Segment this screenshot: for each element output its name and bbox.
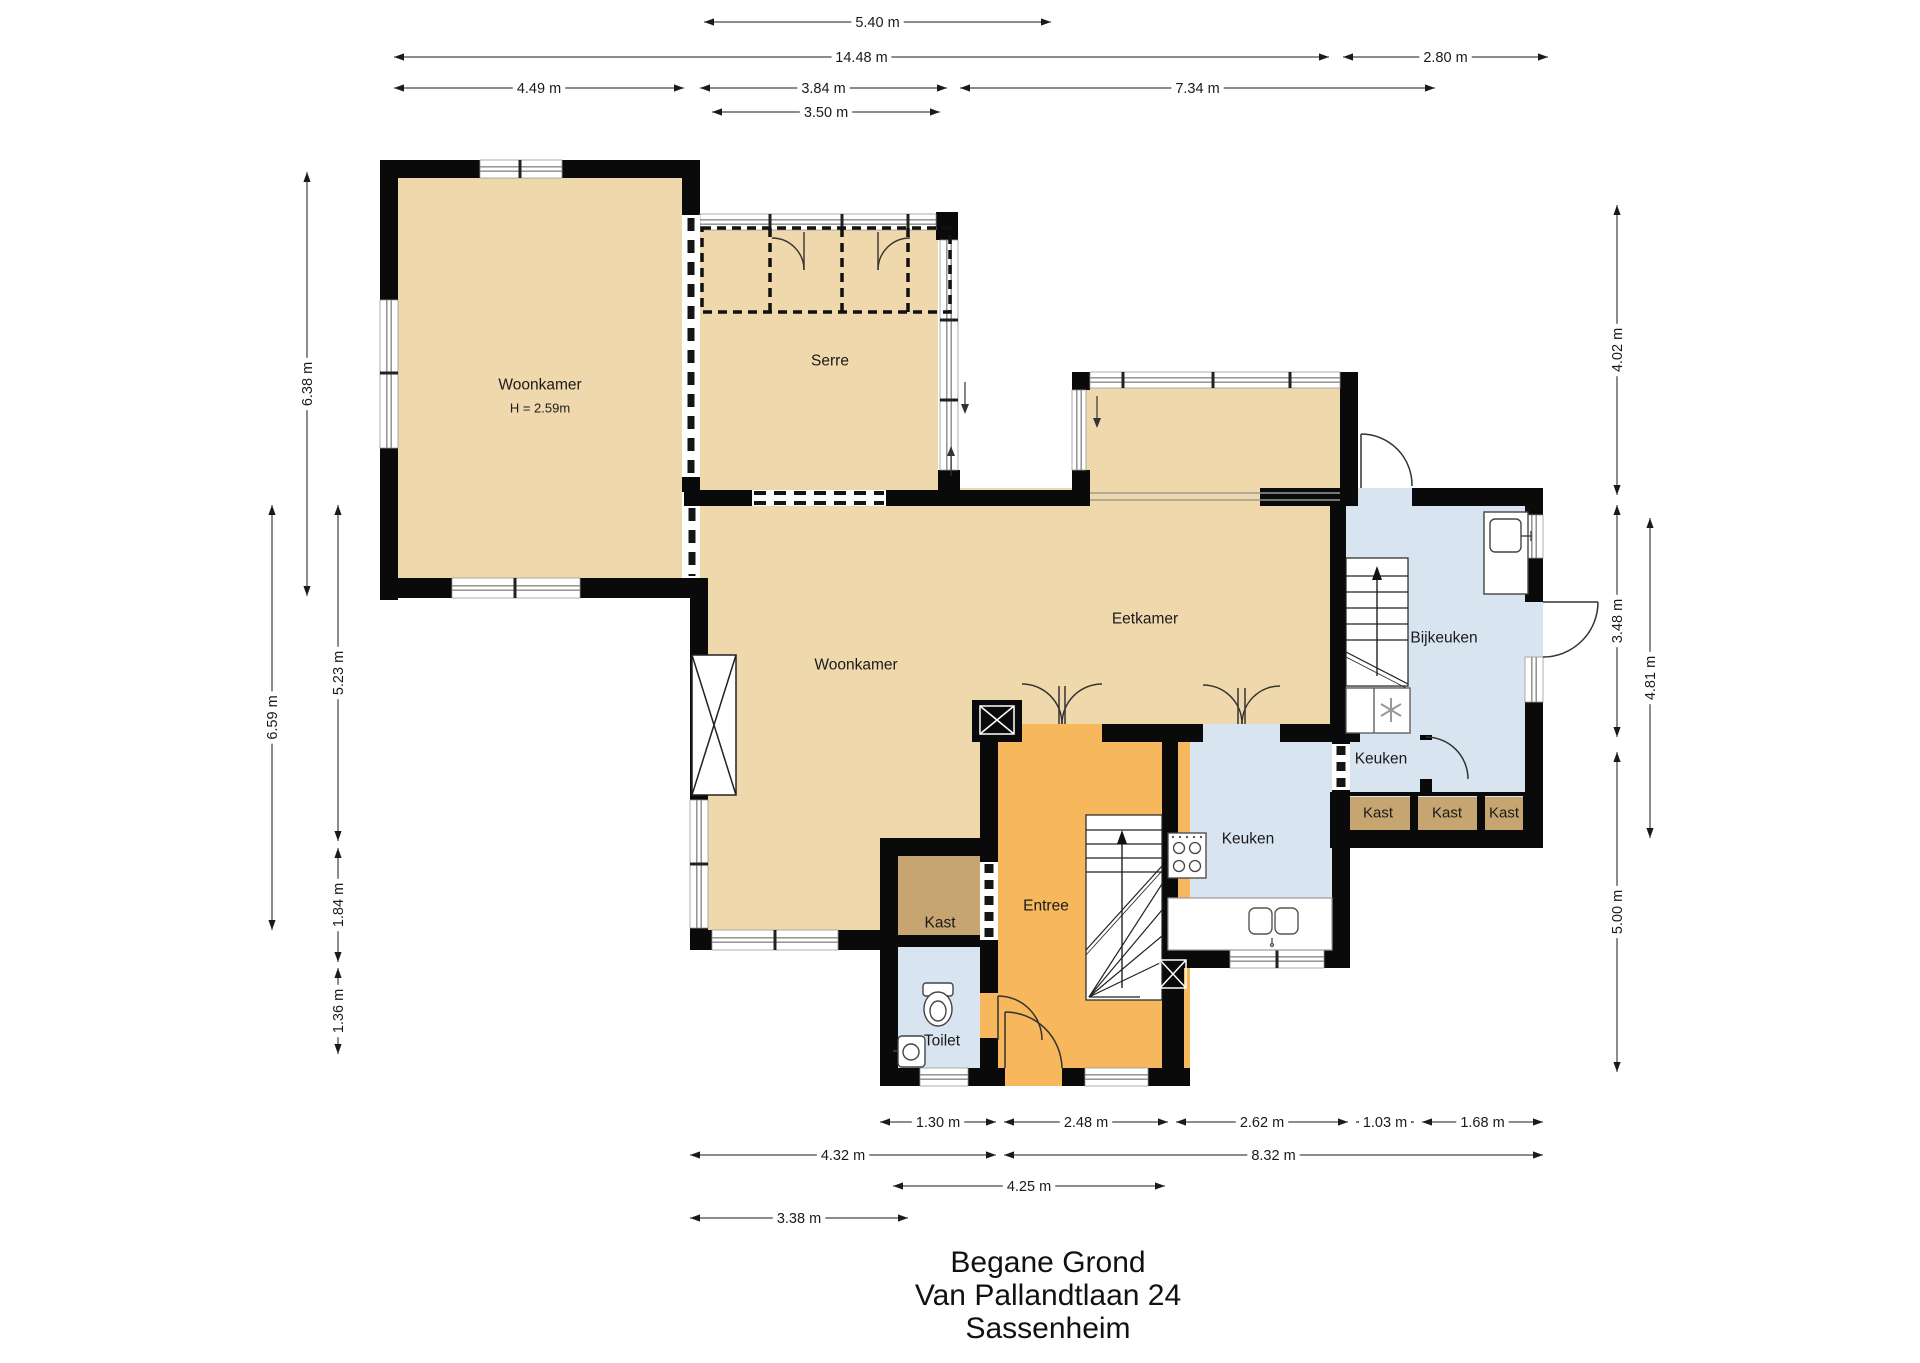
room-label-keuken-small: Keuken xyxy=(1355,750,1408,767)
window xyxy=(480,160,562,178)
wall-segment xyxy=(380,178,398,300)
room-label-entree: Entree xyxy=(1023,897,1069,914)
wall-segment xyxy=(1062,1068,1085,1086)
dimension-label: 1.84 m xyxy=(331,883,347,927)
dimension-left-6-59: 6.59 m xyxy=(264,505,282,930)
dimension-label: 1.30 m xyxy=(916,1115,960,1131)
window xyxy=(1090,372,1340,388)
bijkeuken-right-door xyxy=(1543,602,1598,657)
room-label-eetkamer: Eetkamer xyxy=(1112,610,1178,627)
dimension-label: 8.32 m xyxy=(1251,1148,1295,1164)
dimension-top-7-34: 7.34 m xyxy=(960,80,1435,98)
plan-title-block: Begane Grond Van Pallandtlaan 24 Sassenh… xyxy=(648,1246,1448,1345)
bijkeuken-top-door xyxy=(1361,434,1412,488)
floorplan-page: WoonkamerH = 2.59mSerreWoonkamerEetkamer… xyxy=(0,0,1920,1358)
wall-segment xyxy=(880,1068,920,1086)
stairs-entree xyxy=(1086,815,1162,1000)
wall-segment xyxy=(1412,488,1543,506)
fan-unit xyxy=(1346,688,1410,733)
room-label-keuken-main: Keuken xyxy=(1222,830,1275,847)
dimension-label: 4.49 m xyxy=(517,81,561,97)
dimension-label: 2.62 m xyxy=(1240,1115,1284,1131)
dimension-label: 4.02 m xyxy=(1610,328,1626,372)
room-label-kast-3: Kast xyxy=(1489,804,1520,821)
dimension-top-4-49: 4.49 m xyxy=(394,80,684,98)
dimension-label: 1.36 m xyxy=(331,989,347,1033)
dimension-left-1-36: 1.36 m xyxy=(330,968,348,1054)
wall-segment xyxy=(936,212,958,240)
dimension-label: 1.68 m xyxy=(1460,1115,1504,1131)
dimension-right-4-81: 4.81 m xyxy=(1642,518,1660,838)
room-label-woonkamer-voor: Woonkamer xyxy=(498,376,581,393)
wall-segment xyxy=(580,578,700,598)
wall-segment xyxy=(1162,950,1230,968)
dimension-bottom-1-03: 1.03 m xyxy=(1356,1114,1414,1132)
window xyxy=(452,578,580,598)
window xyxy=(712,930,838,950)
toilet-fixture xyxy=(923,983,953,1026)
dimension-left-6-38: 6.38 m xyxy=(299,172,317,596)
window xyxy=(1525,657,1543,702)
dimension-label: 14.48 m xyxy=(835,50,887,66)
wall-segment xyxy=(1410,792,1418,830)
wall-segment xyxy=(1072,372,1090,390)
dimension-top-3-50: 3.50 m xyxy=(712,104,940,122)
wall-segment xyxy=(1260,488,1358,506)
room-label-kast-hal: Kast xyxy=(924,914,956,931)
dimension-bottom-1-68: 1.68 m xyxy=(1422,1114,1543,1132)
room-label-bijkeuken: Bijkeuken xyxy=(1410,629,1477,646)
dimension-label: 4.25 m xyxy=(1007,1179,1051,1195)
room-label-toilet: Toilet xyxy=(924,1032,961,1049)
dimension-label: 3.38 m xyxy=(777,1211,821,1227)
wall-segment xyxy=(690,930,712,950)
dimension-bottom-2-48: 2.48 m xyxy=(1004,1114,1168,1132)
dimension-bottom-1-30: 1.30 m xyxy=(880,1114,996,1132)
room-label-kast-1: Kast xyxy=(1363,804,1394,821)
dimension-left-1-84: 1.84 m xyxy=(330,848,348,962)
dimension-top-2-80: 2.80 m xyxy=(1343,49,1548,67)
wall-segment xyxy=(886,490,1076,506)
dimension-label: 2.48 m xyxy=(1064,1115,1108,1131)
dimension-bottom-4-32: 4.32 m xyxy=(690,1147,996,1165)
dimension-label: 4.81 m xyxy=(1643,656,1659,700)
stove-fixture xyxy=(1168,833,1206,878)
window xyxy=(1230,950,1324,968)
dimension-label: 6.59 m xyxy=(265,695,281,739)
wall-segment xyxy=(1332,790,1350,968)
wall-segment xyxy=(380,448,398,600)
toilet-sink xyxy=(893,1036,925,1067)
dimension-label: 3.84 m xyxy=(801,81,845,97)
bijkeuken-sink xyxy=(1484,512,1531,594)
wall-segment xyxy=(1332,735,1350,744)
dimension-right-4-02: 4.02 m xyxy=(1609,205,1627,495)
wall-segment xyxy=(1346,792,1523,796)
wall-segment xyxy=(980,940,998,993)
wall-segment xyxy=(682,160,700,215)
room-label-woonkamer-main: Woonkamer xyxy=(814,656,897,673)
room-label-kast-2: Kast xyxy=(1432,804,1463,821)
dimension-bottom-8-32: 8.32 m xyxy=(1004,1147,1543,1165)
wall-segment xyxy=(1523,792,1543,830)
wall-segment xyxy=(1072,470,1090,506)
dimension-top-5-40: 5.40 m xyxy=(704,14,1051,32)
wall-segment xyxy=(684,490,752,506)
wall-segment xyxy=(1330,830,1543,848)
flue-box-left xyxy=(692,655,736,795)
dimension-label: 5.40 m xyxy=(855,15,899,31)
wall-segment xyxy=(1420,779,1432,792)
window xyxy=(380,300,398,448)
wall-segment xyxy=(682,477,700,492)
window xyxy=(920,1068,968,1086)
wall-segment xyxy=(1477,792,1485,830)
wall-segment xyxy=(1102,724,1180,742)
dimension-label: 3.48 m xyxy=(1610,599,1626,643)
window xyxy=(940,240,958,470)
floorplan-canvas: WoonkamerH = 2.59mSerreWoonkamerEetkamer… xyxy=(0,0,1920,1358)
wall-segment xyxy=(880,838,998,856)
wall-segment xyxy=(380,160,480,178)
dimension-label: 3.50 m xyxy=(804,105,848,121)
window xyxy=(1072,390,1086,470)
wall-segment xyxy=(1162,968,1184,1086)
window xyxy=(690,800,708,928)
room-label-serre: Serre xyxy=(811,352,849,369)
dimension-right-3-48: 3.48 m xyxy=(1609,505,1627,737)
dimension-bottom-3-38: 3.38 m xyxy=(690,1210,908,1228)
stairs-bijkeuken xyxy=(1346,558,1408,689)
wall-segment xyxy=(880,838,898,1086)
plan-title-line1: Begane Grond xyxy=(648,1246,1448,1279)
opening-underlay xyxy=(682,215,700,477)
dimension-top-14-48: 14.48 m xyxy=(394,49,1329,67)
wall-segment xyxy=(562,160,700,178)
wall-segment xyxy=(968,1068,1005,1086)
dimension-top-3-84: 3.84 m xyxy=(700,80,947,98)
dimension-label: 4.32 m xyxy=(821,1148,865,1164)
window xyxy=(1085,1068,1148,1086)
plan-title-line3: Sassenheim xyxy=(648,1312,1448,1345)
room-height-note-woonkamer-voor: H = 2.59m xyxy=(510,401,570,416)
dimension-bottom-2-62: 2.62 m xyxy=(1176,1114,1348,1132)
dimension-label: 5.00 m xyxy=(1610,890,1626,934)
dimension-label: 2.80 m xyxy=(1423,50,1467,66)
dimension-right-5-00: 5.00 m xyxy=(1609,752,1627,1072)
dimension-label: 6.38 m xyxy=(300,362,316,406)
wall-segment xyxy=(380,578,452,598)
dimension-label: 1.03 m xyxy=(1363,1115,1407,1131)
wall-segment xyxy=(1330,506,1346,735)
dimension-bottom-4-25: 4.25 m xyxy=(893,1178,1165,1196)
wall-segment xyxy=(838,930,890,950)
floor-eetkamer-bay xyxy=(1072,372,1358,506)
plan-title-line2: Van Pallandtlaan 24 xyxy=(648,1279,1448,1312)
dimension-label: 5.23 m xyxy=(331,651,347,695)
wall-segment xyxy=(1340,372,1358,390)
dimension-left-5-23: 5.23 m xyxy=(330,505,348,841)
wall-segment xyxy=(1525,488,1543,515)
dimension-label: 7.34 m xyxy=(1175,81,1219,97)
